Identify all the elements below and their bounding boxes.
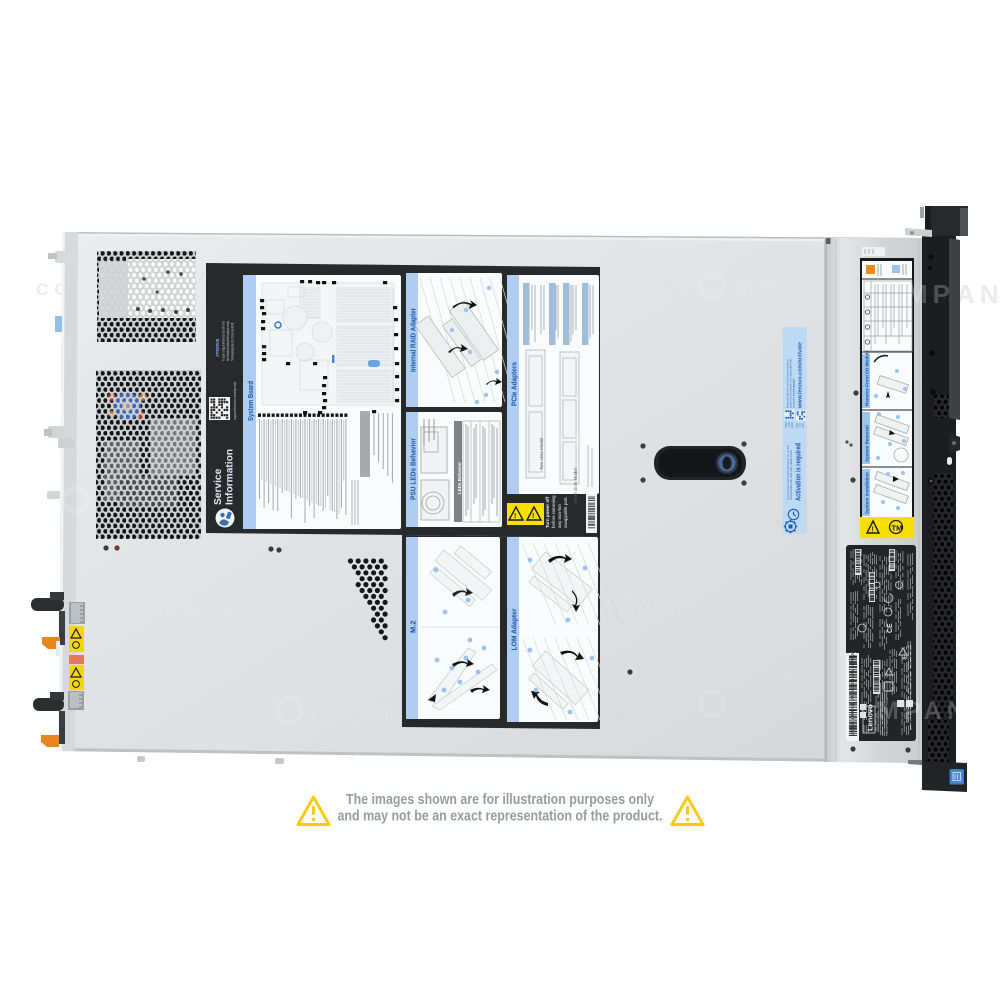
svg-text:than 2 minutes at a time while: than 2 minutes at a time while the syste…: [226, 321, 230, 361]
svg-text:any non-hot: any non-hot: [557, 503, 562, 528]
svg-text:Three slots Model: Three slots Model: [573, 468, 578, 504]
svg-text:Service: Service: [213, 468, 224, 505]
svg-text:!: !: [514, 513, 516, 520]
svg-text:Remove Front I/O Module: Remove Front I/O Module: [865, 350, 870, 406]
svg-text:TM: TM: [892, 524, 903, 533]
svg-text:to your the warranty upgrades.: to your the warranty upgrades.: [792, 378, 796, 408]
svg-text:Two slots Model: Two slots Model: [539, 438, 544, 470]
svg-text:PSU LEDs Behavior: PSU LEDs Behavior: [411, 438, 418, 500]
svg-text:before removing: before removing: [551, 495, 556, 528]
svg-text:LEDs Behavior: LEDs Behavior: [457, 462, 462, 494]
svg-text:ATTENTION: ATTENTION: [215, 339, 220, 357]
svg-text:MPAN: MPAN: [878, 697, 970, 725]
svg-text:M.2: M.2: [409, 620, 418, 633]
svg-text:|7X06| MTM-S/N 7X06CTO1WW-SAAV: |7X06| MTM-S/N 7X06CTO1WW-SAAVW846: [850, 644, 855, 735]
svg-text:Information: Information: [225, 449, 236, 505]
svg-text:Internal RAID Adapter: Internal RAID Adapter: [411, 308, 418, 372]
svg-text:For proper cooling, do not lea: For proper cooling, do not leave top cov…: [222, 321, 226, 361]
svg-text:and may not be an exact repres: and may not be an exact representation o…: [338, 809, 663, 825]
svg-text:MP: MP: [906, 279, 955, 309]
svg-text:Thermal damage may occur if co: Thermal damage may occur if covers are l…: [231, 323, 235, 361]
svg-text:Time Domain Unit, care, port,: Time Domain Unit, care, port, clearly no…: [789, 450, 793, 500]
svg-text:Turn power off: Turn power off: [545, 496, 550, 528]
svg-text:MPAN: MPAN: [592, 594, 681, 621]
svg-text:MPAN: MPAN: [733, 276, 825, 304]
svg-text:!: !: [872, 527, 874, 534]
svg-text:System Installation: System Installation: [865, 472, 870, 514]
svg-text:support.lenovo.com/qrcode: support.lenovo.com/qrcode: [233, 381, 237, 420]
svg-text:System Board: System Board: [246, 381, 255, 421]
svg-text:LOM Adapter: LOM Adapter: [512, 608, 519, 650]
svg-text:CE: CE: [887, 623, 894, 633]
svg-text:The images shown are for illus: The images shown are for illustration pu…: [346, 792, 654, 808]
svg-text:Lenovo: Lenovo: [866, 704, 875, 731]
svg-text:COMPAN: COMPAN: [146, 601, 259, 622]
svg-text:PCIe Adapters: PCIe Adapters: [512, 362, 519, 406]
svg-text:AN: AN: [956, 279, 1000, 309]
svg-text:!: !: [532, 513, 534, 520]
svg-text:Activation is required: Activation is required: [794, 443, 803, 501]
svg-text:www.lenovo.com/activate: www.lenovo.com/activate: [798, 342, 804, 409]
svg-text:swappable part.: swappable part.: [563, 496, 568, 528]
svg-text:System Removal: System Removal: [865, 425, 870, 462]
